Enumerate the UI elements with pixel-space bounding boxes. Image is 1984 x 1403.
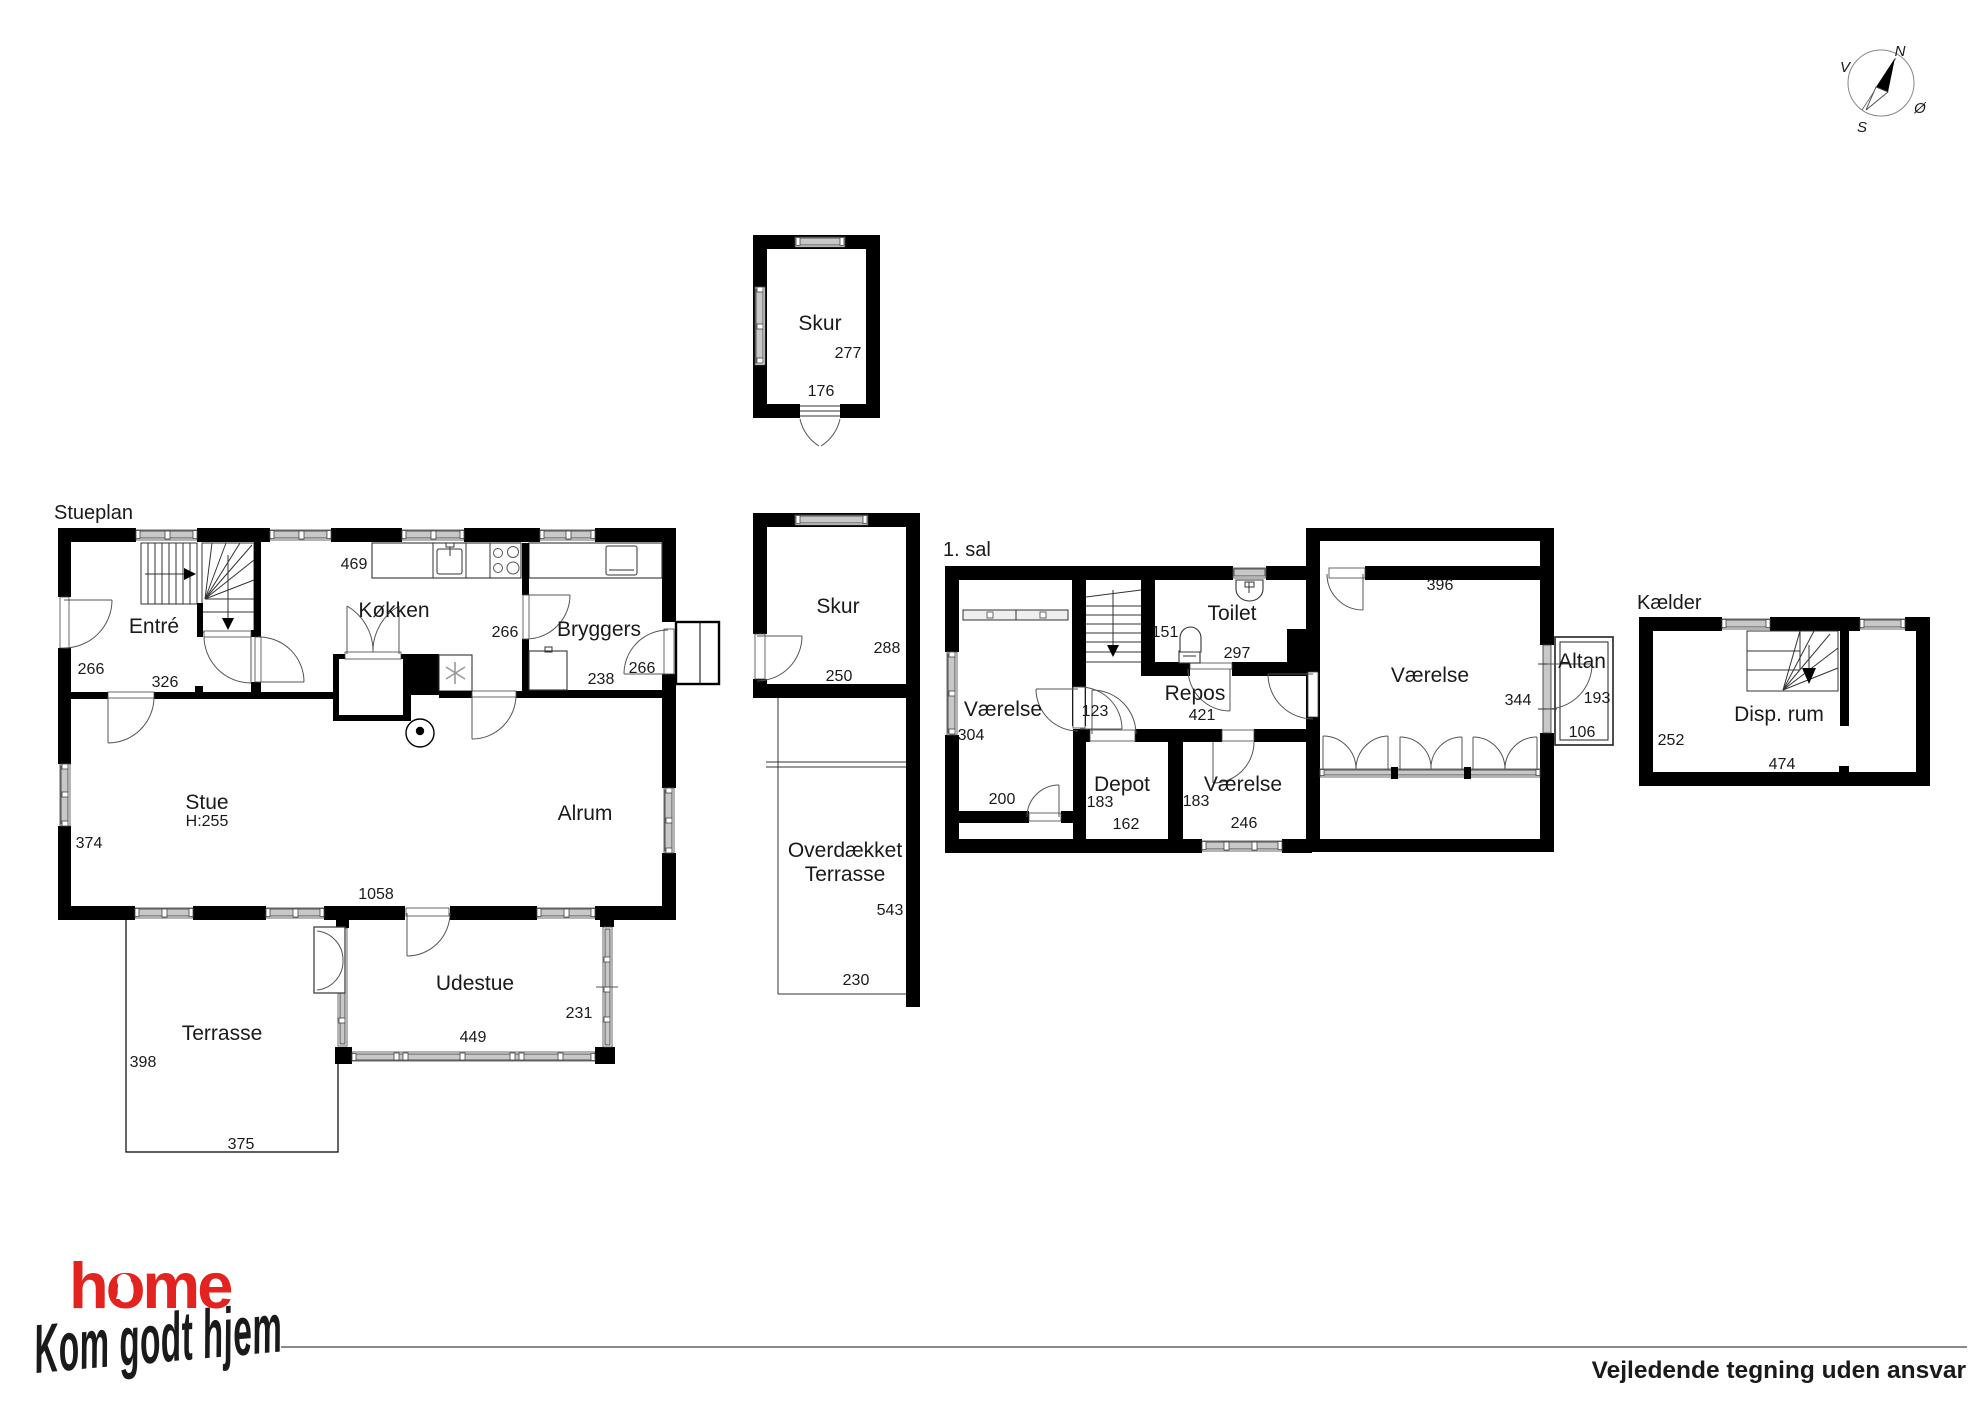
svg-text:Værelse: Værelse [1391, 664, 1469, 687]
svg-text:Vejledende tegning uden ansvar: Vejledende tegning uden ansvar [1592, 1357, 1967, 1384]
svg-text:123: 123 [1082, 703, 1109, 720]
svg-text:Skur: Skur [798, 312, 841, 335]
svg-text:Repos: Repos [1165, 682, 1226, 705]
svg-text:S: S [1857, 119, 1867, 136]
svg-text:374: 374 [76, 835, 103, 852]
svg-text:230: 230 [843, 972, 870, 989]
svg-text:543: 543 [877, 902, 904, 919]
svg-text:Bryggers: Bryggers [557, 618, 641, 641]
svg-text:Depot: Depot [1094, 773, 1150, 796]
svg-text:106: 106 [1569, 724, 1596, 741]
svg-text:421: 421 [1189, 707, 1216, 724]
svg-text:304: 304 [958, 727, 985, 744]
svg-text:344: 344 [1505, 692, 1532, 709]
svg-text:326: 326 [152, 674, 179, 691]
svg-text:1. sal: 1. sal [943, 539, 991, 561]
svg-text:200: 200 [989, 791, 1016, 808]
svg-text:Overdækket: Overdækket [788, 839, 903, 862]
svg-text:250: 250 [826, 668, 853, 685]
svg-text:1058: 1058 [358, 886, 394, 903]
svg-text:266: 266 [78, 661, 105, 678]
svg-text:277: 277 [835, 345, 862, 362]
svg-text:Skur: Skur [816, 595, 859, 618]
svg-text:297: 297 [1224, 645, 1251, 662]
svg-text:474: 474 [1769, 756, 1796, 773]
svg-text:Værelse: Værelse [1204, 773, 1282, 796]
svg-text:Toilet: Toilet [1207, 602, 1256, 625]
svg-text:449: 449 [460, 1029, 487, 1046]
svg-text:Terrasse: Terrasse [805, 863, 886, 886]
svg-text:Altan: Altan [1558, 650, 1606, 673]
svg-text:Ø: Ø [1913, 100, 1927, 117]
svg-text:Terrasse: Terrasse [182, 1022, 263, 1045]
svg-text:H:255: H:255 [186, 813, 229, 830]
svg-text:N: N [1895, 43, 1906, 60]
svg-text:151: 151 [1152, 624, 1179, 641]
svg-text:Udestue: Udestue [436, 972, 514, 995]
svg-text:266: 266 [629, 660, 656, 677]
svg-text:398: 398 [130, 1054, 157, 1071]
svg-text:193: 193 [1584, 690, 1611, 707]
svg-text:396: 396 [1427, 577, 1454, 594]
svg-text:469: 469 [341, 556, 368, 573]
svg-text:Kælder: Kælder [1637, 592, 1702, 614]
svg-text:Værelse: Værelse [964, 698, 1042, 721]
svg-text:266: 266 [492, 624, 519, 641]
svg-text:162: 162 [1113, 816, 1140, 833]
svg-text:Disp. rum: Disp. rum [1734, 703, 1824, 726]
svg-text:375: 375 [228, 1136, 255, 1153]
svg-text:231: 231 [566, 1005, 593, 1022]
svg-text:252: 252 [1658, 732, 1685, 749]
svg-text:183: 183 [1183, 793, 1210, 810]
svg-text:Alrum: Alrum [558, 802, 613, 825]
svg-text:176: 176 [808, 383, 835, 400]
svg-text:288: 288 [874, 640, 901, 657]
svg-text:238: 238 [588, 671, 615, 688]
svg-text:Entré: Entré [129, 615, 179, 638]
svg-text:Stue: Stue [185, 791, 228, 814]
svg-text:Stueplan: Stueplan [54, 502, 133, 524]
svg-text:Køkken: Køkken [358, 599, 429, 622]
svg-text:183: 183 [1087, 794, 1114, 811]
svg-text:V: V [1840, 59, 1852, 76]
svg-text:246: 246 [1231, 815, 1258, 832]
